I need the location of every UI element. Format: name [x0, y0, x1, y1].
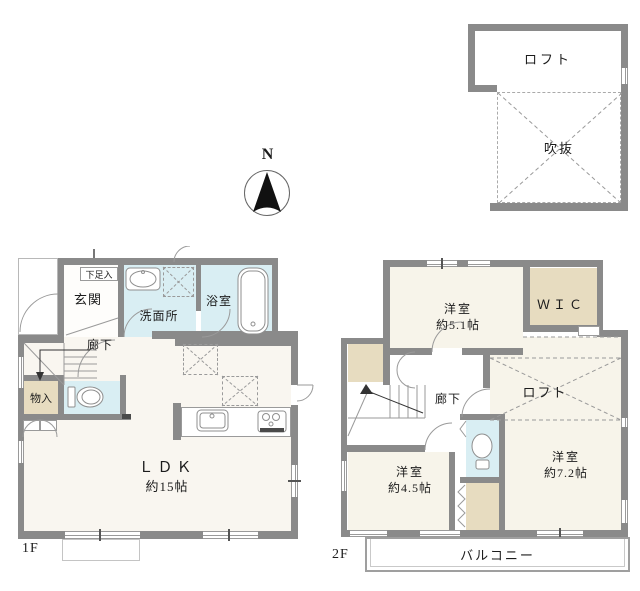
entrance-step-line — [66, 318, 118, 335]
wall — [468, 24, 628, 31]
staircase — [348, 385, 425, 436]
ldk-label: ＬＤＫ 約15帖 — [105, 456, 229, 498]
stove-icon — [258, 411, 286, 432]
bedroom-b-name: 洋室 — [396, 464, 424, 480]
floor1-label: 1F — [22, 540, 62, 558]
wall — [621, 24, 628, 210]
bedroom-c-name: 洋室 — [552, 449, 580, 465]
entrance-label: 玄関 — [58, 290, 118, 306]
wall — [468, 24, 475, 92]
void-label: 吹抜 — [497, 92, 621, 203]
bathroom-label: 浴室 — [189, 292, 249, 308]
floor2-label: 2F — [332, 546, 366, 564]
ldk-label-line2: 約15帖 — [145, 478, 188, 496]
loft-dashed-area — [490, 337, 621, 420]
bedroom-b-label: 洋室 約4.5帖 — [360, 460, 460, 500]
bedroom-a-name: 洋室 — [444, 301, 472, 317]
kitchen-sink-icon — [197, 410, 228, 431]
door-arc — [174, 246, 190, 262]
bedroom-a-size: 約5.1帖 — [436, 317, 480, 333]
bedroom-c-size: 約7.2帖 — [544, 465, 588, 481]
wall — [468, 85, 497, 92]
storage-label: 物入 — [24, 381, 58, 414]
door-arc — [297, 385, 313, 401]
hallway-label: 廊下 — [70, 336, 130, 352]
bedroom-c-label: 洋室 約7.2帖 — [516, 445, 616, 485]
ldk-label-line1: ＬＤＫ — [138, 458, 195, 478]
toilet-icon — [68, 387, 103, 407]
stair-arrow-icon — [36, 350, 90, 381]
loft-top-label: ロフト — [475, 32, 621, 84]
loft-section: ロフト 吹抜 — [468, 24, 628, 211]
door-arc — [202, 309, 230, 337]
wic-label: ＷＩＣ — [528, 295, 594, 311]
door-arc — [397, 352, 415, 370]
door-arc — [20, 294, 58, 332]
window — [621, 68, 628, 84]
toilet-icon — [472, 434, 492, 469]
floor1-plan: 下足入 玄関 洗面所 浴室 廊下 物入 ＬＤＫ 約15帖 1F — [18, 246, 330, 575]
north-arrow-icon — [240, 144, 296, 226]
door-arc — [397, 370, 415, 388]
hallway2-label: 廊下 — [426, 391, 470, 405]
door-arc — [40, 420, 57, 437]
washbasin-icon — [126, 268, 160, 290]
bedroom-a-label: 洋室 約5.1帖 — [408, 297, 508, 337]
washroom-label: 洗面所 — [121, 307, 197, 323]
compass: N — [240, 144, 296, 226]
loft2-label: ロフト — [505, 383, 585, 399]
door-arc — [425, 423, 452, 450]
shoe-cupboard-label: 下足入 — [80, 267, 118, 281]
wall — [490, 203, 628, 211]
floor-plan: ロフト 吹抜 N — [0, 0, 640, 591]
floor2-plan: バルコニー — [330, 253, 632, 578]
bedroom-b-size: 約4.5帖 — [388, 480, 432, 496]
door-arc — [23, 420, 40, 437]
